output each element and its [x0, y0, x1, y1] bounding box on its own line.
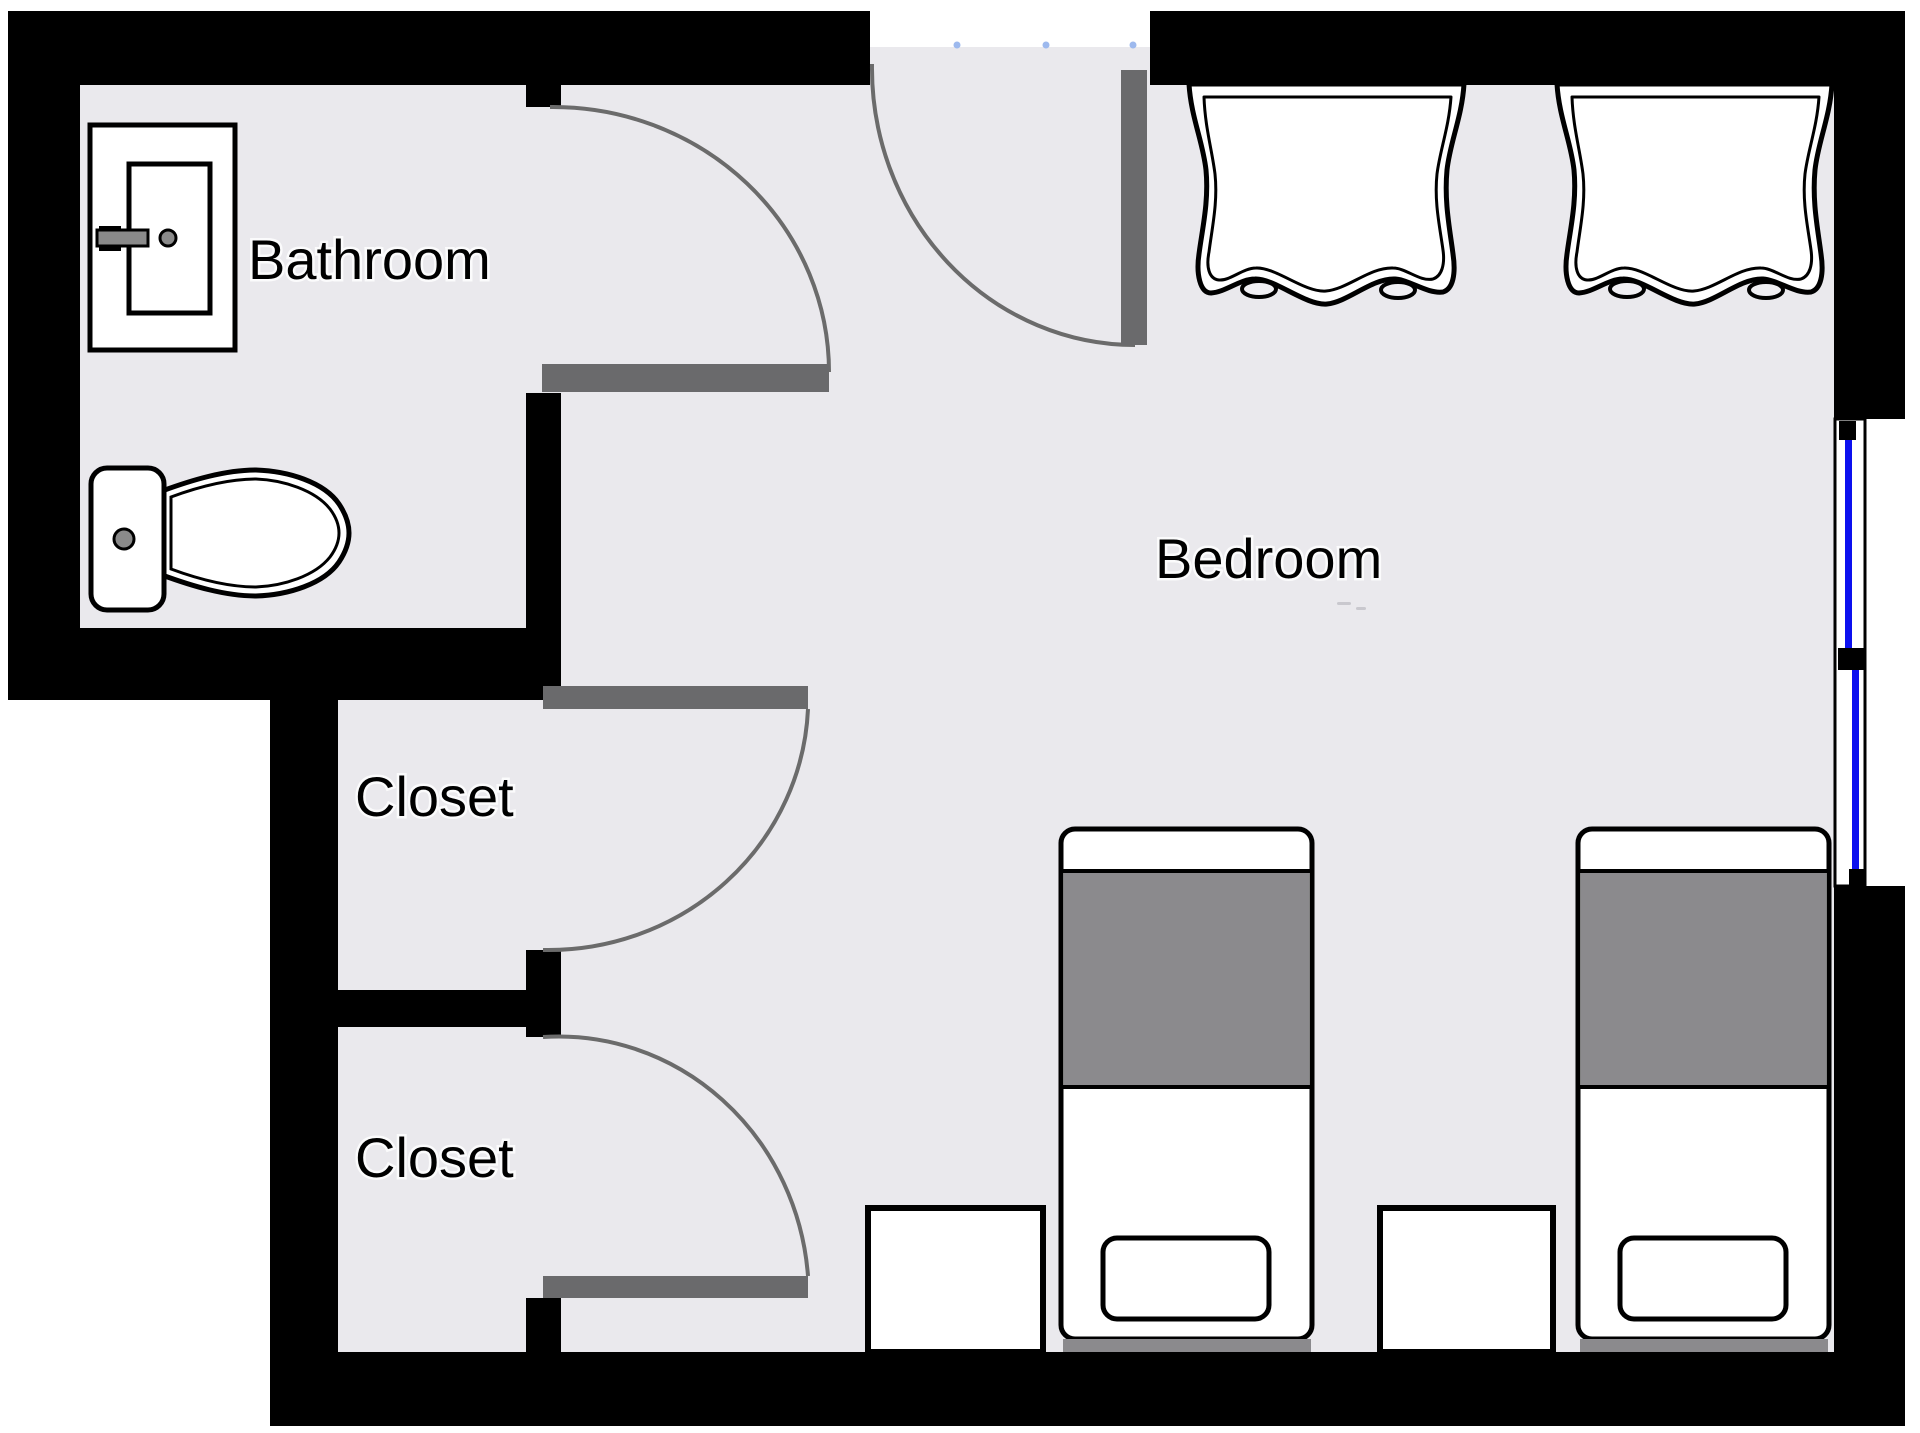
svg-text:Bathroom: Bathroom: [248, 228, 491, 291]
svg-text:Closet: Closet: [355, 1126, 514, 1189]
svg-text:Closet: Closet: [355, 765, 514, 828]
svg-text:Bedroom: Bedroom: [1155, 527, 1382, 590]
